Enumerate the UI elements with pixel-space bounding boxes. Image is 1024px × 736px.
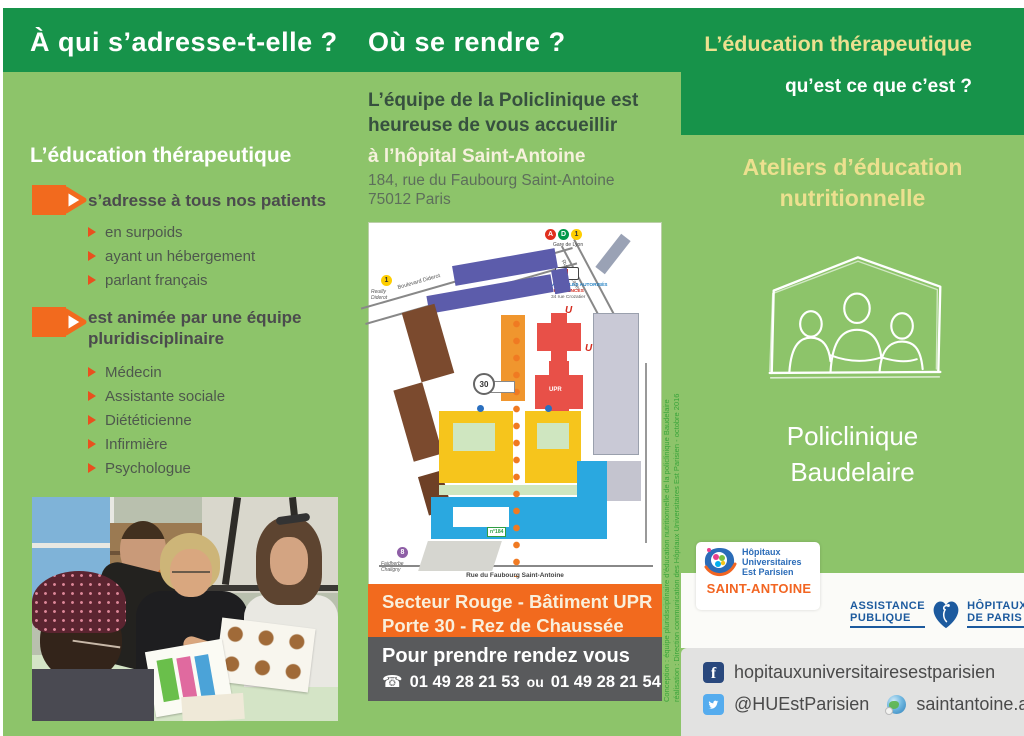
phone-number[interactable]: 01 49 28 21 54: [551, 673, 661, 692]
globe-icon: [887, 695, 906, 714]
porte-30-badge: 30: [473, 373, 495, 395]
website-link[interactable]: saintantoine.aphp.fr: [879, 694, 1024, 715]
bullet-label: s’adresse à tous nos patients: [88, 190, 338, 211]
gare-de-lyon-transit-icons: A D 1: [545, 229, 582, 240]
left-heading: L’éducation thérapeutique: [30, 144, 291, 168]
welcome-text: L’équipe de la Policlinique est heureuse…: [368, 88, 638, 138]
facebook-handle: hopitauxuniversitairesestparisien: [734, 662, 995, 683]
building: [603, 461, 641, 501]
rer-d-icon: D: [558, 229, 569, 240]
metro-8-icon: 8: [397, 547, 408, 558]
hospital-name: à l’hôpital Saint-Antoine: [368, 146, 585, 168]
bullet-sublist: Médecin Assistante sociale Diététicienne…: [88, 360, 225, 480]
entrance-184-badge: n°184: [487, 527, 506, 537]
workshop-title: Ateliers d’éducation nutritionnelle: [681, 152, 1024, 214]
phone-icon: ☎: [382, 672, 403, 692]
list-item: Psychologue: [88, 456, 225, 480]
sub-item-label: Infirmière: [105, 436, 168, 453]
info-icon: [545, 405, 552, 412]
right-header-block: [681, 8, 1024, 135]
social-box: f hopitauxuniversitairesestparisien @HUE…: [681, 648, 1024, 736]
arrow-bullet-icon: [32, 183, 88, 217]
sub-item-label: Diététicienne: [105, 412, 192, 429]
upr-building: [551, 313, 567, 361]
phone-number[interactable]: 01 49 28 21 53: [410, 673, 520, 692]
opera-bastille-shape: [595, 234, 630, 274]
facebook-link[interactable]: f hopitauxuniversitairesestparisien: [703, 662, 995, 683]
triangle-bullet-icon: [88, 227, 96, 237]
sub-item-label: Médecin: [105, 364, 162, 381]
twitter-handle: @HUEstParisien: [734, 694, 869, 715]
building: [593, 313, 639, 455]
aphp-heart-icon: [929, 596, 963, 632]
list-item: parlant français: [88, 268, 255, 292]
cover-subtitle: qu’est ce que c’est ?: [700, 76, 972, 98]
appointment-title: Pour prendre rendez vous: [382, 645, 662, 668]
building: [418, 541, 502, 571]
photo-nutrition-workshop: [32, 497, 338, 721]
reuilly-diderot-label: Reuilly Diderot: [371, 289, 403, 301]
building: [402, 304, 455, 383]
route-dotted-path: [513, 319, 520, 577]
address-line: 75012 Paris: [368, 191, 451, 209]
phone-row: ☎ 01 49 28 21 53 ou 01 49 28 21 54: [382, 672, 662, 692]
faubourg-street-label: Rue du Faubourg Saint-Antoine: [369, 572, 661, 579]
arrow-bullet-icon: [32, 305, 88, 339]
sector-banner: Secteur Rouge - Bâtiment UPR Porte 30 - …: [368, 584, 662, 637]
triangle-bullet-icon: [88, 391, 96, 401]
bullet-label: est animée par une équipe pluridisciplin…: [88, 307, 323, 349]
credits-vertical-text: Conception : équipe pluridisciplinaire d…: [662, 394, 681, 702]
triangle-bullet-icon: [88, 367, 96, 377]
sub-item-label: parlant français: [105, 272, 208, 289]
cover-title: L’éducation thérapeutique: [700, 32, 972, 57]
brochure-page: À qui s’adresse-t-elle ? Où se rendre ? …: [0, 0, 1024, 736]
metro-1-icon: 1: [571, 229, 582, 240]
triangle-bullet-icon: [88, 439, 96, 449]
twitter-icon: [703, 694, 724, 715]
list-item: en surpoids: [88, 220, 255, 244]
info-icon: [477, 405, 484, 412]
hospital-site-map: Boulevard Diderot Rue Crozatier A D 1 Ga…: [368, 222, 662, 588]
rer-a-icon: A: [545, 229, 556, 240]
building: [577, 461, 607, 539]
house-people-illustration: [758, 246, 954, 396]
triangle-bullet-icon: [88, 463, 96, 473]
metro-1-icon: 1: [381, 275, 392, 286]
upr-label: UPR: [549, 387, 562, 393]
clinic-name: Policlinique Baudelaire: [681, 418, 1024, 490]
list-item: Diététicienne: [88, 408, 225, 432]
middle-panel-title: Où se rendre ?: [368, 27, 566, 58]
saint-antoine-logo: Hôpitaux Universitaires Est Parisien SAI…: [696, 542, 820, 610]
appointment-box: Pour prendre rendez vous ☎ 01 49 28 21 5…: [368, 637, 662, 701]
facebook-icon: f: [703, 662, 724, 683]
sub-item-label: Psychologue: [105, 460, 191, 477]
urgences-mark: U: [565, 305, 572, 316]
twitter-link[interactable]: @HUEstParisien: [703, 694, 869, 715]
huep-logo-text: Hôpitaux Universitaires Est Parisien: [742, 547, 802, 577]
list-item: ayant un hébergement: [88, 244, 255, 268]
building: [393, 382, 442, 461]
sub-item-label: Assistante sociale: [105, 388, 225, 405]
triangle-bullet-icon: [88, 275, 96, 285]
website-url: saintantoine.aphp.fr: [916, 694, 1024, 715]
sub-item-label: ayant un hébergement: [105, 248, 255, 265]
left-panel-title: À qui s’adresse-t-elle ?: [30, 27, 338, 58]
saint-antoine-name: SAINT-ANTOINE: [702, 581, 816, 596]
sub-item-label: en surpoids: [105, 224, 183, 241]
triangle-bullet-icon: [88, 415, 96, 425]
triangle-bullet-icon: [88, 251, 96, 261]
list-item: Médecin: [88, 360, 225, 384]
gare-de-lyon-label: Gare de Lyon: [553, 242, 583, 248]
huep-logo-icon: [702, 546, 738, 578]
bullet-sublist: en surpoids ayant un hébergement parlant…: [88, 220, 255, 292]
address-line: 184, rue du Faubourg Saint-Antoine: [368, 172, 614, 190]
urgences-mark: U: [585, 343, 592, 354]
list-item: Infirmière: [88, 432, 225, 456]
aphp-logo: ASSISTANCE PUBLIQUE HÔPITAUX DE PARIS: [850, 596, 1024, 632]
list-item: Assistante sociale: [88, 384, 225, 408]
